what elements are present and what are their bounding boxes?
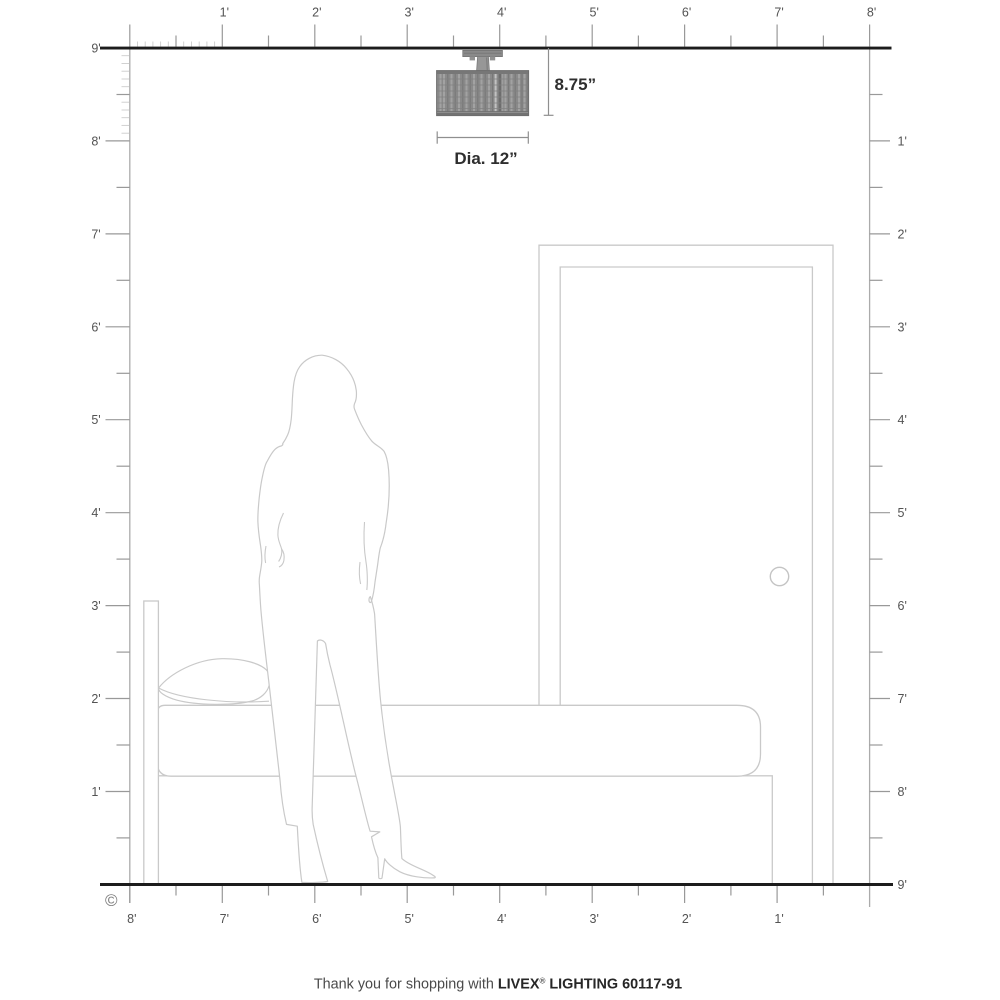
svg-text:9': 9' xyxy=(898,878,907,892)
svg-text:3': 3' xyxy=(898,320,907,334)
svg-text:1': 1' xyxy=(774,912,783,926)
svg-text:3': 3' xyxy=(91,599,100,613)
svg-text:9': 9' xyxy=(91,42,100,56)
svg-text:7': 7' xyxy=(898,692,907,706)
svg-text:8': 8' xyxy=(898,785,907,799)
svg-text:3': 3' xyxy=(405,6,414,20)
svg-text:4': 4' xyxy=(898,413,907,427)
svg-text:Dia. 12”: Dia. 12” xyxy=(454,149,517,168)
svg-text:2': 2' xyxy=(91,692,100,706)
svg-text:4': 4' xyxy=(497,6,506,20)
svg-text:1': 1' xyxy=(220,6,229,20)
svg-text:Thank you for shopping with LI: Thank you for shopping with LIVEX® LIGHT… xyxy=(314,977,682,993)
svg-text:5': 5' xyxy=(590,6,599,20)
svg-text:2': 2' xyxy=(312,6,321,20)
svg-text:3': 3' xyxy=(590,912,599,926)
svg-text:6': 6' xyxy=(682,6,691,20)
svg-text:7': 7' xyxy=(774,6,783,20)
svg-text:8': 8' xyxy=(127,912,136,926)
svg-text:©: © xyxy=(105,891,118,910)
svg-text:6': 6' xyxy=(898,599,907,613)
svg-text:1': 1' xyxy=(898,134,907,148)
svg-text:6': 6' xyxy=(312,912,321,926)
svg-text:7': 7' xyxy=(91,227,100,241)
svg-text:4': 4' xyxy=(91,506,100,520)
svg-text:8.75”: 8.75” xyxy=(555,75,597,94)
svg-text:4': 4' xyxy=(497,912,506,926)
svg-text:5': 5' xyxy=(405,912,414,926)
svg-text:5': 5' xyxy=(898,506,907,520)
svg-text:6': 6' xyxy=(91,320,100,334)
svg-text:2': 2' xyxy=(898,227,907,241)
svg-text:2': 2' xyxy=(682,912,691,926)
svg-text:8': 8' xyxy=(91,134,100,148)
svg-text:1': 1' xyxy=(91,785,100,799)
svg-text:7': 7' xyxy=(220,912,229,926)
svg-text:8': 8' xyxy=(867,6,876,20)
svg-text:5': 5' xyxy=(91,413,100,427)
